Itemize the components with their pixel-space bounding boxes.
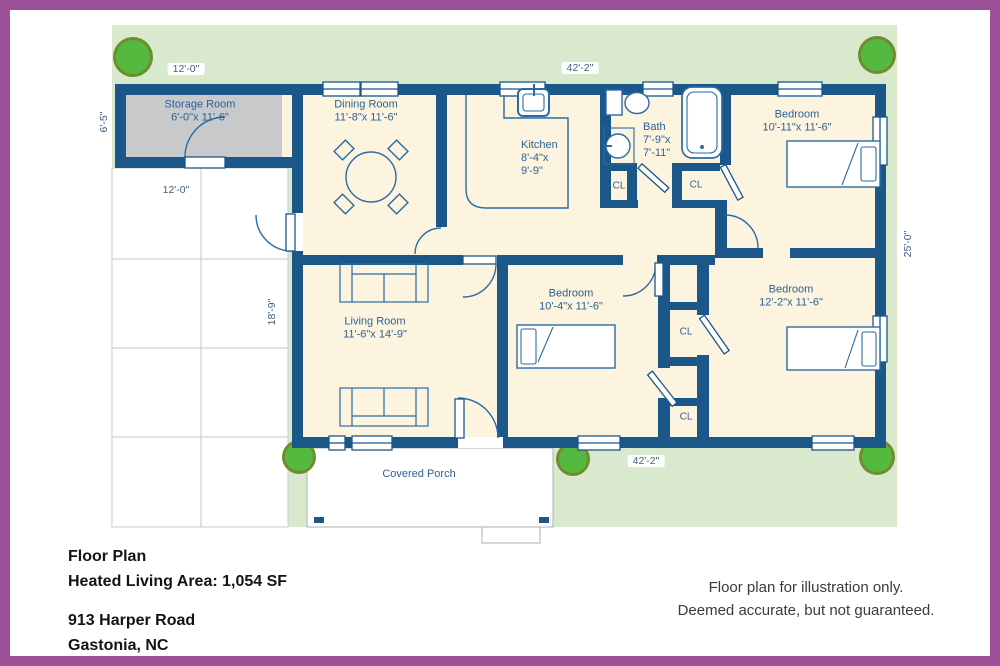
window bbox=[329, 436, 345, 450]
porch-post bbox=[314, 517, 324, 523]
porch-post bbox=[539, 517, 549, 523]
tree-icon bbox=[858, 36, 896, 74]
covered-porch bbox=[307, 448, 553, 543]
window bbox=[361, 82, 398, 96]
bed bbox=[787, 327, 880, 370]
window bbox=[778, 82, 822, 96]
window bbox=[578, 436, 620, 450]
driveway bbox=[112, 168, 288, 527]
window bbox=[352, 436, 392, 450]
porch-step bbox=[482, 527, 540, 543]
kitchen-sink bbox=[518, 84, 549, 116]
bed bbox=[517, 325, 615, 368]
floor-plan-page: Storage Room 6'-0"x 11'-6" Dining Room 1… bbox=[0, 0, 1000, 666]
window bbox=[643, 82, 673, 96]
storage-floor bbox=[126, 95, 282, 157]
bathtub bbox=[682, 87, 722, 158]
tree-icon bbox=[113, 37, 153, 77]
window bbox=[323, 82, 360, 96]
bed bbox=[787, 141, 880, 187]
house-floor bbox=[292, 84, 886, 448]
window bbox=[812, 436, 854, 450]
floor-plan-drawing bbox=[0, 0, 1000, 666]
